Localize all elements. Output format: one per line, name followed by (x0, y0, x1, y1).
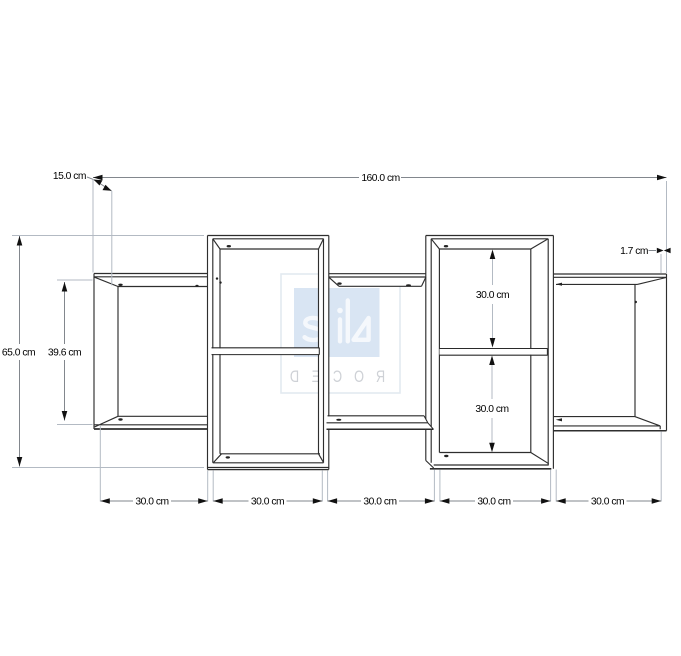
svg-text:C: C (333, 367, 342, 386)
svg-text:30.0 cm: 30.0 cm (475, 404, 508, 415)
svg-text:30.0 cm: 30.0 cm (477, 497, 510, 508)
svg-text:160.0 cm: 160.0 cm (361, 173, 399, 184)
svg-text:15.0 cm: 15.0 cm (53, 171, 86, 182)
svg-text:1.7 cm: 1.7 cm (620, 246, 648, 257)
svg-text:D: D (290, 367, 299, 386)
svg-text:30.0 cm: 30.0 cm (476, 290, 509, 301)
svg-text:65.0 cm: 65.0 cm (2, 348, 35, 359)
svg-text:39.6 cm: 39.6 cm (48, 348, 81, 359)
svg-text:R: R (376, 367, 385, 386)
svg-text:30.0 cm: 30.0 cm (135, 497, 168, 508)
svg-text:30.0 cm: 30.0 cm (591, 497, 624, 508)
svg-text:30.0 cm: 30.0 cm (363, 497, 396, 508)
svg-text:30.0 cm: 30.0 cm (251, 497, 284, 508)
svg-text:O: O (354, 367, 364, 386)
